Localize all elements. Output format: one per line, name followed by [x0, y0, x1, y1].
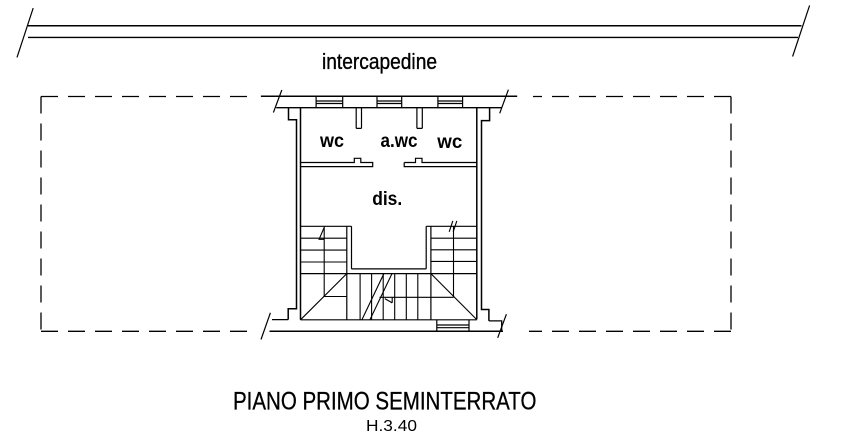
svg-text:wc: wc [319, 131, 344, 152]
svg-text:wc: wc [436, 132, 462, 153]
svg-text:PIANO PRIMO SEMINTERRATO: PIANO PRIMO SEMINTERRATO [233, 388, 536, 416]
svg-text:intercapedine: intercapedine [322, 49, 437, 74]
svg-text:H.3.40: H.3.40 [366, 418, 417, 435]
svg-text:dis.: dis. [372, 189, 402, 210]
svg-text:a.wc: a.wc [381, 131, 418, 152]
